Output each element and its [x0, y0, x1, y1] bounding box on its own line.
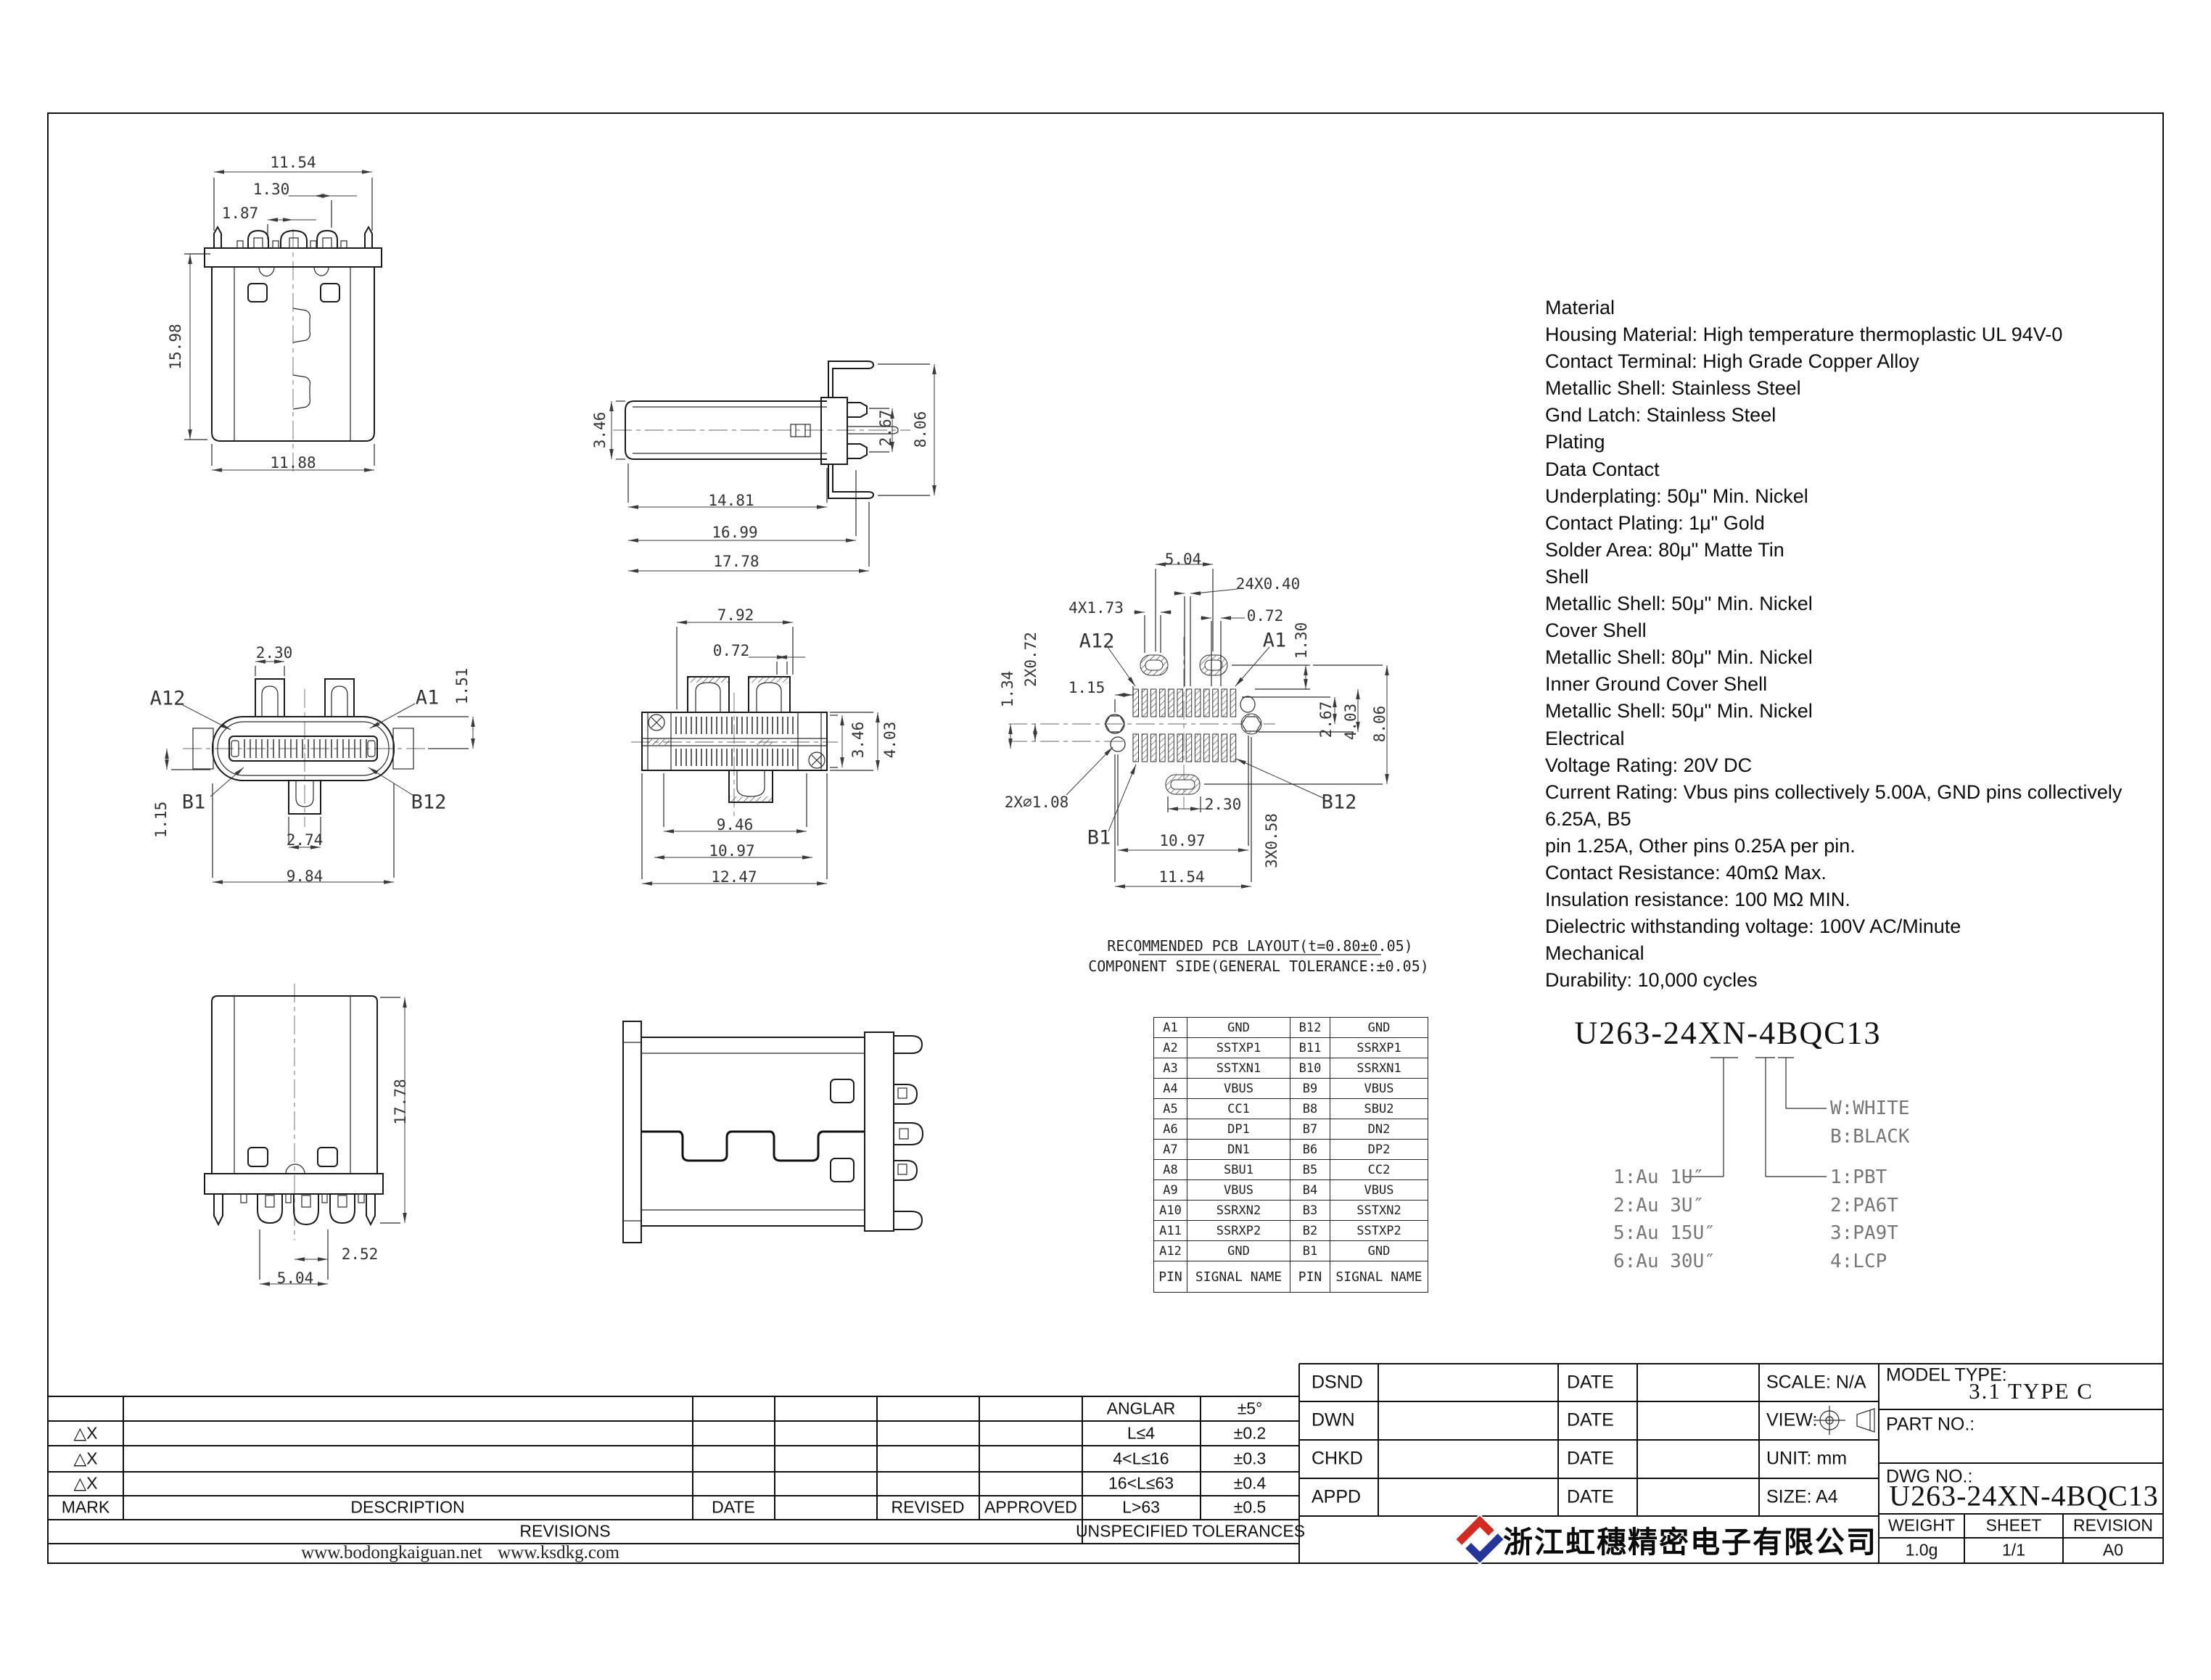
pin-assignment-table: A1GNDB12GNDA2SSTXP1B11SSRXP1A3SSTXN1B10S…: [1153, 1017, 1428, 1293]
pin-table-cell: SIGNAL NAME: [1330, 1261, 1428, 1293]
material-option: 1:PBT: [1830, 1164, 1898, 1192]
pin-table-cell: A5: [1154, 1099, 1187, 1119]
spec-text-block: MaterialHousing Material: High temperatu…: [1545, 295, 2154, 994]
pin-table-cell: CC1: [1187, 1099, 1290, 1119]
material-option: 4:LCP: [1830, 1248, 1898, 1276]
pin-table-cell: A7: [1154, 1140, 1187, 1160]
dim-label: 8.06: [1371, 706, 1388, 743]
pin-table-cell: A9: [1154, 1180, 1187, 1201]
tolerance-value: ±0.5: [1234, 1498, 1267, 1518]
pin-table-cell: B6: [1290, 1140, 1330, 1160]
delta-mark: △X: [73, 1424, 97, 1444]
weight-value: 1.0g: [1906, 1541, 1938, 1560]
decoder-material-options: 1:PBT2:PA6T3:PA9T4:LCP: [1830, 1164, 1898, 1275]
plating-option: 5:Au 15U″: [1613, 1219, 1716, 1248]
spec-line: pin 1.25A, Other pins 0.25A per pin.: [1545, 833, 2154, 860]
dim-label: 1.87: [222, 205, 259, 222]
pin-table-cell: A12: [1154, 1241, 1187, 1261]
pcb-caption-line2: COMPONENT SIDE(GENERAL TOLERANCE:±0.05): [1088, 958, 1429, 975]
pin-table-cell: SSTXN2: [1330, 1201, 1428, 1221]
decoder-color-options: W:WHITEB:BLACK: [1830, 1095, 1910, 1150]
tolerance-range: 4<L≤16: [1113, 1449, 1169, 1469]
spec-line: Metallic Shell: Stainless Steel: [1545, 375, 2154, 402]
pin-table-cell: SIGNAL NAME: [1187, 1261, 1290, 1293]
pin-table-cell: SSRXN1: [1330, 1058, 1428, 1079]
tolerance-value: ±0.2: [1234, 1424, 1267, 1444]
dim-label: 24X0.40: [1236, 575, 1301, 593]
tolerance-range: 16<L≤63: [1108, 1474, 1174, 1494]
pin-table-cell: B4: [1290, 1180, 1330, 1201]
dim-label: A12: [150, 688, 186, 710]
spec-line: Gnd Latch: Stainless Steel: [1545, 402, 2154, 429]
color-option: W:WHITE: [1830, 1095, 1910, 1123]
plating-option: 6:Au 30U″: [1613, 1248, 1716, 1276]
pin-table-cell: SBU2: [1330, 1099, 1428, 1119]
pin-table-cell: DP1: [1187, 1119, 1290, 1140]
pin-table-cell: A3: [1154, 1058, 1187, 1079]
dim-label: 2.74: [287, 831, 324, 849]
spec-line: Plating: [1545, 429, 2154, 456]
angular-label: ANGLAR: [1107, 1399, 1176, 1419]
pin-table-cell: DN2: [1330, 1119, 1428, 1140]
spec-line: Underplating: 50μ" Min. Nickel: [1545, 483, 2154, 510]
appd-label: APPD: [1312, 1487, 1361, 1508]
pin-table-row: A7DN1B6DP2: [1154, 1140, 1428, 1160]
plating-option: 2:Au 3U″: [1613, 1192, 1716, 1220]
pin-table-cell: SSRXP1: [1330, 1038, 1428, 1058]
pin-table-cell: B8: [1290, 1099, 1330, 1119]
dim-label: 10.97: [709, 842, 754, 860]
date-header: DATE: [712, 1498, 755, 1518]
date-label-3: DATE: [1567, 1449, 1614, 1470]
projection-view-icon: [1813, 1406, 1874, 1435]
pin-table-row: A12GNDB1GND: [1154, 1241, 1428, 1261]
revisions-title: REVISIONS: [519, 1522, 610, 1541]
pin-table-cell: A2: [1154, 1038, 1187, 1058]
description-header: DESCRIPTION: [350, 1498, 464, 1518]
dim-label: 9.46: [717, 816, 754, 833]
pin-table-cell: B12: [1290, 1018, 1330, 1038]
part-no-label: PART NO.:: [1886, 1415, 1975, 1436]
spec-line: Housing Material: High temperature therm…: [1545, 321, 2154, 348]
pin-table-row: A11SSRXP2B2SSTXP2: [1154, 1221, 1428, 1241]
revision-label: REVISION: [2073, 1516, 2153, 1536]
pin-table-row: A8SBU1B5CC2: [1154, 1160, 1428, 1180]
pin-table-row: A4VBUSB9VBUS: [1154, 1079, 1428, 1099]
dim-label: 14.81: [708, 492, 754, 509]
pin-table-cell: A6: [1154, 1119, 1187, 1140]
dim-label: 15.98: [167, 324, 184, 369]
pin-table-cell: SSRXN2: [1187, 1201, 1290, 1221]
spec-line: Metallic Shell: 50μ" Min. Nickel: [1545, 590, 2154, 617]
revised-header: REVISED: [892, 1498, 965, 1518]
company-logo: [1455, 1515, 1504, 1564]
dim-label: 11.54: [270, 154, 316, 171]
unspecified-tolerances-label: UNSPECIFIED TOLERANCES: [1076, 1522, 1305, 1541]
plating-option: 1:Au 1U″: [1613, 1164, 1716, 1192]
pin-table-cell: A11: [1154, 1221, 1187, 1241]
angular-value: ±5°: [1238, 1399, 1263, 1419]
dim-label: 2.30: [1205, 796, 1242, 813]
pin-table-cell: B2: [1290, 1221, 1330, 1241]
spec-line: Metallic Shell: 50μ" Min. Nickel: [1545, 698, 2154, 725]
dim-label: 8.06: [912, 411, 929, 448]
pin-table-cell: SBU1: [1187, 1160, 1290, 1180]
dim-label: 9.84: [287, 868, 324, 885]
revision-value: A0: [2103, 1541, 2123, 1560]
spec-line: Metallic Shell: 80μ" Min. Nickel: [1545, 644, 2154, 671]
dwn-label: DWN: [1312, 1410, 1355, 1431]
dim-label: B1: [1087, 827, 1111, 849]
spec-line: Solder Area: 80μ" Matte Tin: [1545, 537, 2154, 564]
pin-table-cell: A1: [1154, 1018, 1187, 1038]
drawing-sheet: 11.541.301.8715.9811.883.462.678.0614.81…: [0, 0, 2211, 1680]
spec-line: Inner Ground Cover Shell: [1545, 671, 2154, 698]
sheet-label: SHEET: [1986, 1516, 2042, 1536]
pin-table-cell: PIN: [1290, 1261, 1330, 1293]
pcb-pads: [1133, 689, 1236, 762]
dim-label: 4.03: [1342, 704, 1359, 741]
spec-line: Durability: 10,000 cycles: [1545, 967, 2154, 994]
delta-mark: △X: [73, 1449, 97, 1469]
dim-label: 0.72: [713, 642, 750, 659]
dim-label: A1: [416, 687, 440, 709]
pin-table-cell: B11: [1290, 1038, 1330, 1058]
dim-label: B12: [1322, 791, 1357, 814]
pin-table-cell: B7: [1290, 1119, 1330, 1140]
dsnd-label: DSND: [1312, 1372, 1363, 1393]
pin-table-row: A3SSTXN1B10SSRXN1: [1154, 1058, 1428, 1079]
approved-header: APPROVED: [984, 1498, 1077, 1518]
pin-table-cell: VBUS: [1330, 1079, 1428, 1099]
decoder-lines: [1684, 1058, 1827, 1177]
pin-table-cell: SSRXP2: [1187, 1221, 1290, 1241]
spec-line: Contact Plating: 1μ" Gold: [1545, 510, 2154, 537]
website-link-2: www.ksdkg.com: [498, 1543, 619, 1563]
pin-table-cell: CC2: [1330, 1160, 1428, 1180]
spec-line: Insulation resistance: 100 MΩ MIN.: [1545, 886, 2154, 913]
scale-label: SCALE: N/A: [1766, 1372, 1866, 1393]
spec-line: Shell: [1545, 564, 2154, 590]
size-label: SIZE: A4: [1766, 1487, 1838, 1508]
dim-label: 1.15: [152, 802, 170, 839]
dim-label: 10.97: [1159, 832, 1205, 849]
pin-table-row: A9VBUSB4VBUS: [1154, 1180, 1428, 1201]
unit-label: UNIT: mm: [1766, 1449, 1847, 1470]
date-label-4: DATE: [1567, 1487, 1614, 1508]
pin-table-cell: A8: [1154, 1160, 1187, 1180]
decoder-plating-options: 1:Au 1U″2:Au 3U″5:Au 15U″6:Au 30U″: [1613, 1164, 1716, 1275]
pin-table-cell: PIN: [1154, 1261, 1187, 1293]
side-view: [612, 361, 934, 571]
mark-header: MARK: [62, 1498, 110, 1518]
dim-label: 3.46: [591, 412, 609, 449]
dim-label: 1.51: [453, 668, 471, 705]
dim-label: 17.78: [392, 1079, 409, 1124]
dim-label: 1.30: [1293, 622, 1310, 659]
spec-line: Material: [1545, 295, 2154, 321]
dim-label: 2X0.72: [1022, 632, 1039, 687]
dim-label: 16.99: [712, 524, 757, 541]
spec-line: Cover Shell: [1545, 617, 2154, 644]
dim-label: 1.34: [999, 671, 1016, 708]
weight-label: WEIGHT: [1888, 1516, 1955, 1536]
pin-table-cell: GND: [1330, 1018, 1428, 1038]
pin-table-cell: VBUS: [1187, 1079, 1290, 1099]
dim-label: 17.78: [713, 553, 759, 570]
dim-label: 2.30: [256, 644, 293, 662]
pin-table-row: A1GNDB12GND: [1154, 1018, 1428, 1038]
pin-table-cell: SSTXP2: [1330, 1221, 1428, 1241]
dim-label: 5.04: [1165, 551, 1202, 568]
pin-table-cell: B1: [1290, 1241, 1330, 1261]
pin-table-cell: DP2: [1330, 1140, 1428, 1160]
material-option: 2:PA6T: [1830, 1192, 1898, 1220]
dim-label: 3.46: [849, 722, 867, 759]
pin-table-cell: VBUS: [1187, 1180, 1290, 1201]
pin-table-cell: B5: [1290, 1160, 1330, 1180]
pin-table-cell: A10: [1154, 1201, 1187, 1221]
pin-table-cell: GND: [1187, 1018, 1290, 1038]
pin-table-cell: B3: [1290, 1201, 1330, 1221]
pin-table-header-row: PINSIGNAL NAMEPINSIGNAL NAME: [1154, 1261, 1428, 1293]
decoder-part-number: U263-24XN-4BQC13: [1574, 1015, 1881, 1052]
tolerance-value: ±0.4: [1234, 1474, 1267, 1494]
dim-label: 11.54: [1158, 868, 1204, 886]
pcb-layout-view: [1008, 564, 1387, 955]
spec-line: Data Contact: [1545, 456, 2154, 483]
spec-line: Contact Resistance: 40mΩ Max.: [1545, 860, 2154, 886]
dim-label: 7.92: [717, 606, 754, 624]
dim-label: 3X0.58: [1263, 813, 1280, 868]
spec-line: Electrical: [1545, 725, 2154, 752]
pin-table-row: A10SSRXN2B3SSTXN2: [1154, 1201, 1428, 1221]
model-type-value: 3.1 TYPE C: [1969, 1378, 2093, 1404]
dim-label: A12: [1079, 630, 1115, 653]
side-view-2: [623, 1021, 923, 1243]
dim-label: 0.72: [1247, 607, 1284, 625]
front-view: [184, 172, 382, 476]
pin-table-cell: GND: [1330, 1241, 1428, 1261]
dim-label: B1: [182, 791, 206, 814]
pin-table-cell: VBUS: [1330, 1180, 1428, 1201]
sheet-value: 1/1: [2002, 1541, 2025, 1560]
spec-line: Current Rating: Vbus pins collectively 5…: [1545, 779, 2154, 833]
dim-label: 2.67: [1317, 701, 1335, 738]
dim-label: 1.30: [253, 181, 290, 198]
pin-table-row: A2SSTXP1B11SSRXP1: [1154, 1038, 1428, 1058]
pin-table-row: A6DP1B7DN2: [1154, 1119, 1428, 1140]
pcb-caption-line1: RECOMMENDED PCB LAYOUT(t=0.80±0.05): [1107, 937, 1412, 955]
pin-table-cell: DN1: [1187, 1140, 1290, 1160]
pin-table-cell: SSTXN1: [1187, 1058, 1290, 1079]
dwg-no-value: U263-24XN-4BQC13: [1889, 1479, 2159, 1513]
tolerance-value: ±0.3: [1234, 1449, 1267, 1469]
pin-table-cell: B10: [1290, 1058, 1330, 1079]
view-label: VIEW:: [1766, 1410, 1817, 1431]
material-option: 3:PA9T: [1830, 1219, 1898, 1248]
dim-label: 2.52: [342, 1245, 379, 1263]
dim-label: 2.67: [877, 410, 894, 447]
dim-label: 12.47: [711, 868, 757, 886]
date-label-2: DATE: [1567, 1410, 1614, 1431]
dim-label: 4X1.73: [1069, 599, 1124, 617]
dim-label: 11.88: [270, 454, 316, 472]
dim-label: A1: [1263, 630, 1287, 652]
dim-label: 5.04: [277, 1269, 314, 1287]
spec-line: Mechanical: [1545, 940, 2154, 967]
tolerance-range: L≤4: [1127, 1424, 1155, 1444]
date-label-1: DATE: [1567, 1372, 1614, 1393]
rear-view: [205, 984, 405, 1284]
tolerance-range: L>63: [1122, 1498, 1160, 1518]
delta-mark: △X: [73, 1474, 97, 1494]
pin-table-cell: GND: [1187, 1241, 1290, 1261]
dim-label: 4.03: [881, 722, 899, 759]
dim-label: B12: [411, 791, 447, 814]
dim-label: 2X∅1.08: [1005, 794, 1069, 811]
chkd-label: CHKD: [1312, 1449, 1363, 1470]
company-name: 浙江虹穗精密电子有限公司: [1503, 1518, 1877, 1561]
pin-table-cell: B9: [1290, 1079, 1330, 1099]
color-option: B:BLACK: [1830, 1123, 1910, 1151]
spec-line: Dielectric withstanding voltage: 100V AC…: [1545, 913, 2154, 940]
spec-line: Contact Terminal: High Grade Copper Allo…: [1545, 348, 2154, 375]
pin-table-cell: SSTXP1: [1187, 1038, 1290, 1058]
spec-line: Voltage Rating: 20V DC: [1545, 752, 2154, 779]
dim-label: 1.15: [1069, 679, 1105, 696]
pin-table-row: A5CC1B8SBU2: [1154, 1099, 1428, 1119]
website-link-1: www.bodongkaiguan.net: [301, 1543, 482, 1563]
pin-table-cell: A4: [1154, 1079, 1187, 1099]
